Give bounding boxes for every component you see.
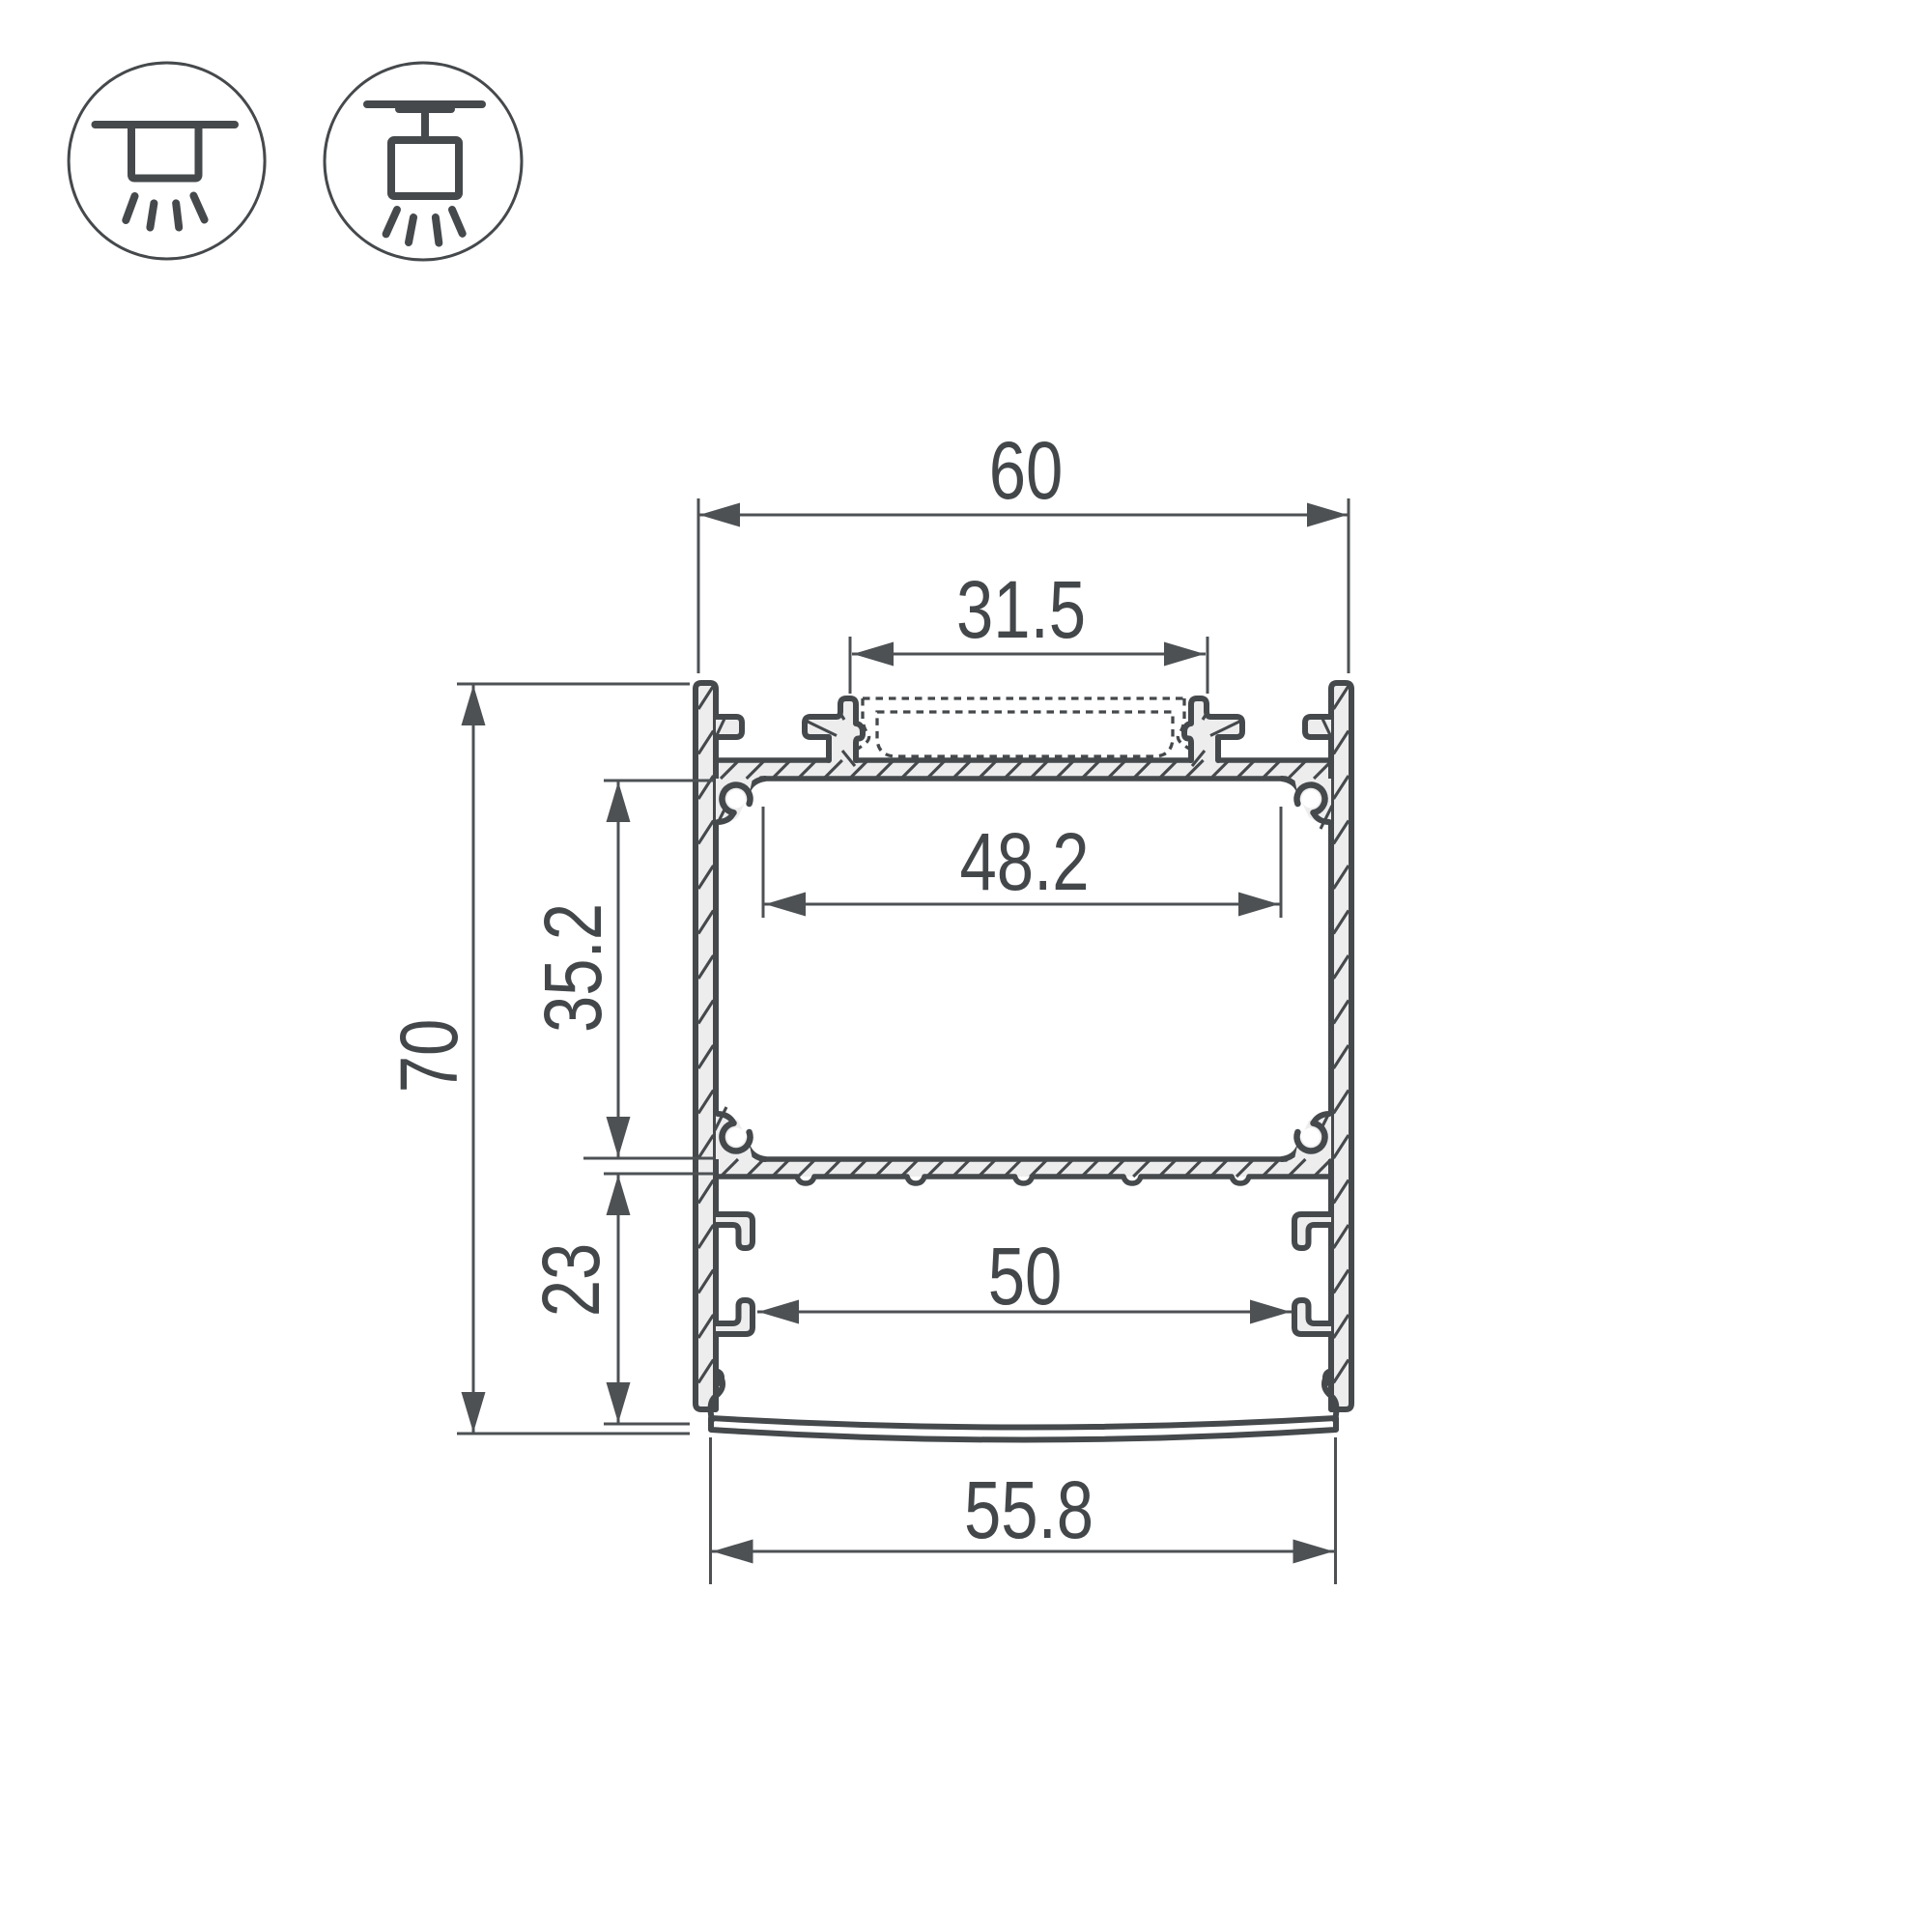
svg-text:48.2: 48.2 (959, 817, 1089, 908)
svg-text:70: 70 (384, 1019, 475, 1094)
svg-text:50: 50 (988, 1232, 1063, 1322)
svg-text:31.5: 31.5 (956, 565, 1086, 656)
svg-text:23: 23 (526, 1243, 617, 1318)
svg-text:55.8: 55.8 (964, 1465, 1094, 1556)
svg-text:60: 60 (989, 426, 1064, 517)
svg-text:35.2: 35.2 (528, 903, 619, 1033)
